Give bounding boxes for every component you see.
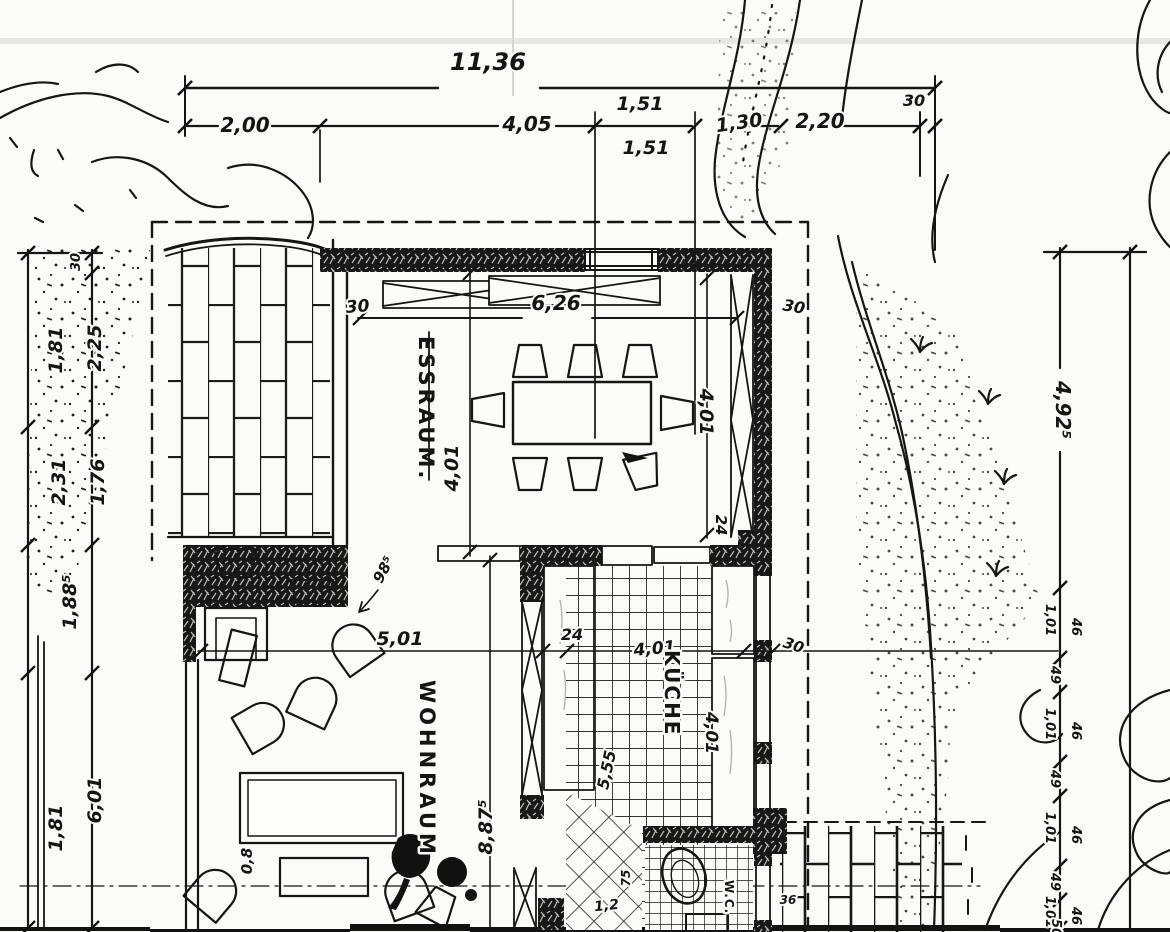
dim-50: 50	[1048, 919, 1063, 932]
dim-24-right-wall: 24	[712, 515, 730, 536]
dim-5-01: 5,01	[377, 628, 424, 650]
sideboard	[383, 276, 660, 308]
fold-line-horizontal	[0, 38, 1170, 44]
room-label-dining: ESSRAUM.	[414, 336, 438, 481]
dim-46-d: 46	[1068, 906, 1083, 925]
dim-75-wc: 75	[619, 870, 633, 887]
dim-1-81-a: 1,81	[45, 327, 67, 374]
plank-paving	[168, 248, 330, 537]
floor-plan-drawing: 11,36 2,00 4,05 1,51 1,51 1,30 2,20 30 3…	[0, 0, 1170, 932]
window-top	[585, 249, 658, 270]
room-label-wc: W.C.	[722, 880, 736, 914]
dim-24-kitchen-wall: 24	[561, 625, 583, 644]
dim-1-76: 1,76	[87, 459, 109, 506]
dim-1-88-5: 1,88⁵	[59, 574, 81, 629]
dim-6-26: 6,26	[531, 291, 580, 315]
dim-30-left: 30	[69, 253, 84, 271]
room-label-living: WOHNRAUM	[415, 680, 439, 858]
dim-1-81-b: 1,81	[45, 805, 67, 852]
dim-46-a: 46	[1068, 617, 1083, 636]
dim-0-8-bench: 0,8	[238, 848, 256, 875]
dim-49-c: 49	[1047, 872, 1062, 891]
dim-36-paving: 36	[780, 893, 797, 907]
dim-4-92-5: 4,92⁵	[1051, 380, 1075, 439]
dim-2-20: 2,20	[795, 109, 844, 133]
dim-30-dining-wall: 30	[781, 295, 806, 318]
dim-1-51-lower: 1,51	[623, 137, 670, 159]
dim-46-c: 46	[1068, 825, 1083, 844]
terrace-top-left	[165, 238, 347, 545]
dim-49-b: 49	[1047, 769, 1062, 788]
dim-overall: 11,36	[450, 48, 526, 76]
dim-1-01-a: 1,01	[1042, 604, 1057, 636]
dim-46-b: 46	[1068, 721, 1083, 740]
dim-49-a: 49	[1047, 665, 1062, 684]
wall-top-left	[320, 248, 585, 272]
room-label-kitchen: KÜCHE	[660, 650, 684, 736]
dim-1-2-wc: 1,2	[593, 897, 619, 916]
sofa-table	[240, 773, 403, 843]
dim-1-51-upper: 1,51	[617, 93, 664, 115]
dim-4-01-dining-right: 4,01	[695, 388, 717, 436]
dim-1-01-b: 1,01	[1042, 708, 1057, 740]
scanned-floor-plan-page: 11,36 2,00 4,05 1,51 1,51 1,30 2,20 30 3…	[0, 0, 1170, 932]
dim-30-terrace: 30	[345, 296, 370, 318]
dim-2-00: 2,00	[220, 113, 269, 137]
dim-1-01-c: 1,01	[1042, 812, 1057, 844]
dim-6-01: 6,01	[84, 777, 106, 824]
dim-8-87-5: 8,87⁵	[475, 799, 497, 854]
dim-30-top: 30	[903, 91, 925, 110]
brick-paving	[780, 826, 962, 932]
terrace-bottom-right	[753, 808, 972, 932]
dim-2-31: 2,31	[48, 459, 70, 506]
dim-4-05: 4,05	[501, 112, 551, 136]
wall-right-dining	[754, 248, 772, 576]
dim-2-25: 2,25	[84, 325, 106, 372]
dim-4-01-kitchen-depth: 4,01	[701, 711, 721, 754]
dim-4-01-dining-left: 4,01	[441, 445, 463, 493]
